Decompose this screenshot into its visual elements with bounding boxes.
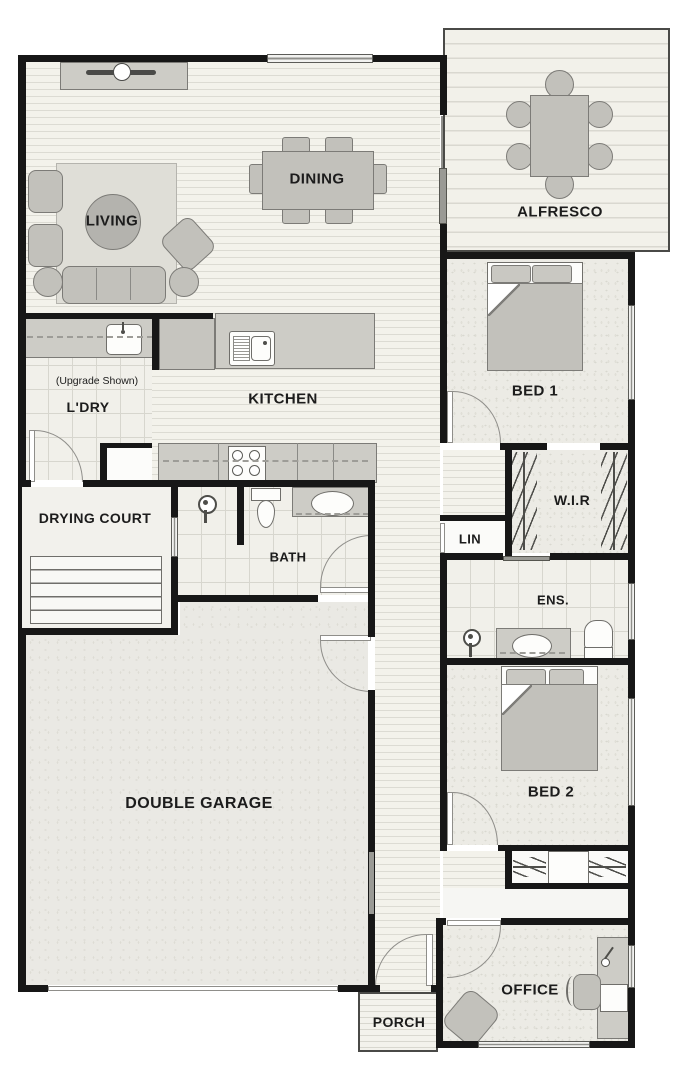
wall-segment	[436, 925, 443, 1048]
wall-segment	[171, 557, 178, 634]
floor-plan: LIVING DINING ALFRESCO (Upgrade Shown) L…	[0, 0, 678, 1080]
door-leaf	[320, 587, 371, 593]
clothesline-icon	[30, 556, 162, 624]
shower-stem	[469, 643, 472, 657]
robe-front-floor	[443, 851, 505, 888]
wall-segment	[500, 443, 547, 450]
wall-segment	[498, 845, 635, 851]
vanity-dash	[500, 652, 565, 654]
window	[171, 517, 178, 557]
wall-segment	[440, 553, 503, 560]
entry-vestibule-floor	[443, 888, 628, 918]
wall-segment	[18, 628, 178, 635]
overhead-cupboard-dash	[163, 460, 368, 462]
broom-cupboard	[107, 448, 152, 480]
room-label-garage: DOUBLE GARAGE	[125, 795, 272, 813]
tap-stem	[122, 322, 124, 330]
robe-shelf	[548, 851, 589, 885]
sofa-cushion-line	[130, 268, 131, 300]
laundry-note: (Upgrade Shown)	[56, 375, 138, 387]
room-label-bath: BATH	[270, 550, 307, 565]
room-label-wir: W.I.R	[554, 492, 590, 508]
wall-segment	[550, 553, 635, 560]
burner-icon	[232, 465, 243, 476]
wall-segment	[18, 55, 26, 487]
kitchen-counter	[158, 443, 377, 483]
cooktop-icon	[228, 446, 266, 481]
side-table-icon	[169, 267, 199, 297]
window	[628, 698, 635, 806]
side-table-icon	[33, 267, 63, 297]
pillow-icon	[491, 265, 531, 283]
wall-segment	[338, 985, 380, 992]
hallway-floor	[375, 480, 440, 992]
wall-segment	[440, 515, 505, 521]
sofa-cushion-line	[96, 268, 97, 300]
armchair-icon	[28, 224, 63, 267]
outdoor-chair-icon	[586, 143, 613, 170]
outdoor-chair-icon	[506, 143, 533, 170]
wall-segment	[18, 55, 447, 62]
bed1-entry-floor	[443, 450, 507, 515]
wall-segment	[436, 918, 446, 925]
sofa-icon	[62, 266, 166, 304]
wall-segment	[171, 487, 178, 517]
drawer-unit	[600, 984, 628, 1012]
room-label-dining: DINING	[290, 171, 345, 188]
wall-segment	[100, 443, 107, 482]
shower-stem	[204, 510, 207, 523]
tap-icon	[121, 330, 125, 334]
sink-drainer-icon	[233, 336, 250, 361]
wardrobe-rail-icon	[588, 857, 626, 877]
wall-segment	[18, 635, 26, 992]
tap-icon	[263, 341, 267, 345]
room-label-office: OFFICE	[501, 982, 558, 999]
overhead-cupboard-dash	[27, 336, 153, 338]
wall-segment	[505, 883, 635, 889]
wall-segment	[160, 480, 375, 487]
wall-segment	[501, 918, 635, 925]
wardrobe-rail-icon	[511, 452, 537, 550]
wardrobe-rail-icon	[513, 857, 546, 877]
room-label-living: LIVING	[86, 213, 138, 230]
front-door-leaf	[426, 934, 433, 986]
wall-segment	[440, 560, 447, 658]
outdoor-chair-icon	[506, 101, 533, 128]
shower-icon	[198, 495, 217, 514]
window	[628, 945, 635, 988]
fence-segment	[18, 487, 22, 628]
garage-floor-upper	[180, 602, 368, 635]
sliding-door-panel	[439, 168, 447, 224]
sliding-door-glass	[441, 116, 443, 168]
wall-segment	[18, 480, 31, 487]
pillow-icon	[532, 265, 572, 283]
wall-segment	[440, 658, 635, 665]
wall-segment	[440, 259, 447, 443]
bed-fold-corner	[502, 685, 532, 715]
room-label-porch: PORCH	[373, 1014, 426, 1030]
wall-segment	[18, 313, 213, 319]
window	[478, 1041, 590, 1048]
window	[267, 54, 373, 63]
cabinet-divider	[218, 443, 219, 481]
wall-segment	[18, 985, 48, 992]
wall-segment	[440, 845, 447, 851]
room-label-kitchen: KITCHEN	[248, 391, 317, 408]
wall-segment	[368, 487, 375, 637]
wall-segment	[83, 480, 160, 487]
burner-icon	[249, 465, 260, 476]
cabinet-divider	[297, 443, 298, 481]
wall-segment	[440, 55, 447, 115]
wall-segment	[505, 450, 512, 560]
laundry-trough-icon	[106, 324, 142, 355]
window	[628, 305, 635, 400]
vanity-dash	[296, 513, 369, 515]
outdoor-table	[530, 95, 589, 177]
ensuite-cavity-slider	[503, 556, 550, 561]
room-label-ens: ENS.	[537, 593, 569, 608]
shower-rose	[203, 500, 208, 505]
room-label-bed2: BED 2	[528, 784, 574, 801]
linen-door	[440, 523, 445, 553]
wall-segment	[440, 252, 635, 259]
sink-bowl-icon	[251, 336, 271, 361]
office-chair-icon	[573, 974, 601, 1010]
wall-segment	[152, 313, 159, 370]
wall-recess	[369, 852, 374, 914]
basin-icon	[512, 634, 552, 658]
room-label-alfresco: ALFRESCO	[517, 204, 603, 221]
armchair-icon	[28, 170, 63, 213]
wall-segment	[100, 443, 152, 448]
wall-segment	[440, 665, 447, 845]
wall-segment	[368, 690, 375, 987]
tv-swivel-icon	[113, 63, 131, 81]
room-label-drying-court: DRYING COURT	[39, 510, 151, 526]
room-label-bed1: BED 1	[512, 383, 558, 400]
bed-fold-corner	[488, 284, 520, 316]
shower-rose	[468, 634, 473, 639]
cabinet-divider	[333, 443, 334, 481]
wall-segment	[177, 595, 318, 602]
wardrobe-rail-icon	[601, 452, 627, 550]
room-label-lin: LIN	[459, 532, 481, 547]
garage-door	[48, 986, 338, 991]
outdoor-chair-icon	[586, 101, 613, 128]
window	[628, 583, 635, 640]
toilet-bowl-icon	[584, 620, 613, 649]
wall-segment	[237, 487, 244, 545]
pantry-cabinet	[159, 318, 215, 370]
room-label-laundry: L'DRY	[67, 399, 110, 415]
